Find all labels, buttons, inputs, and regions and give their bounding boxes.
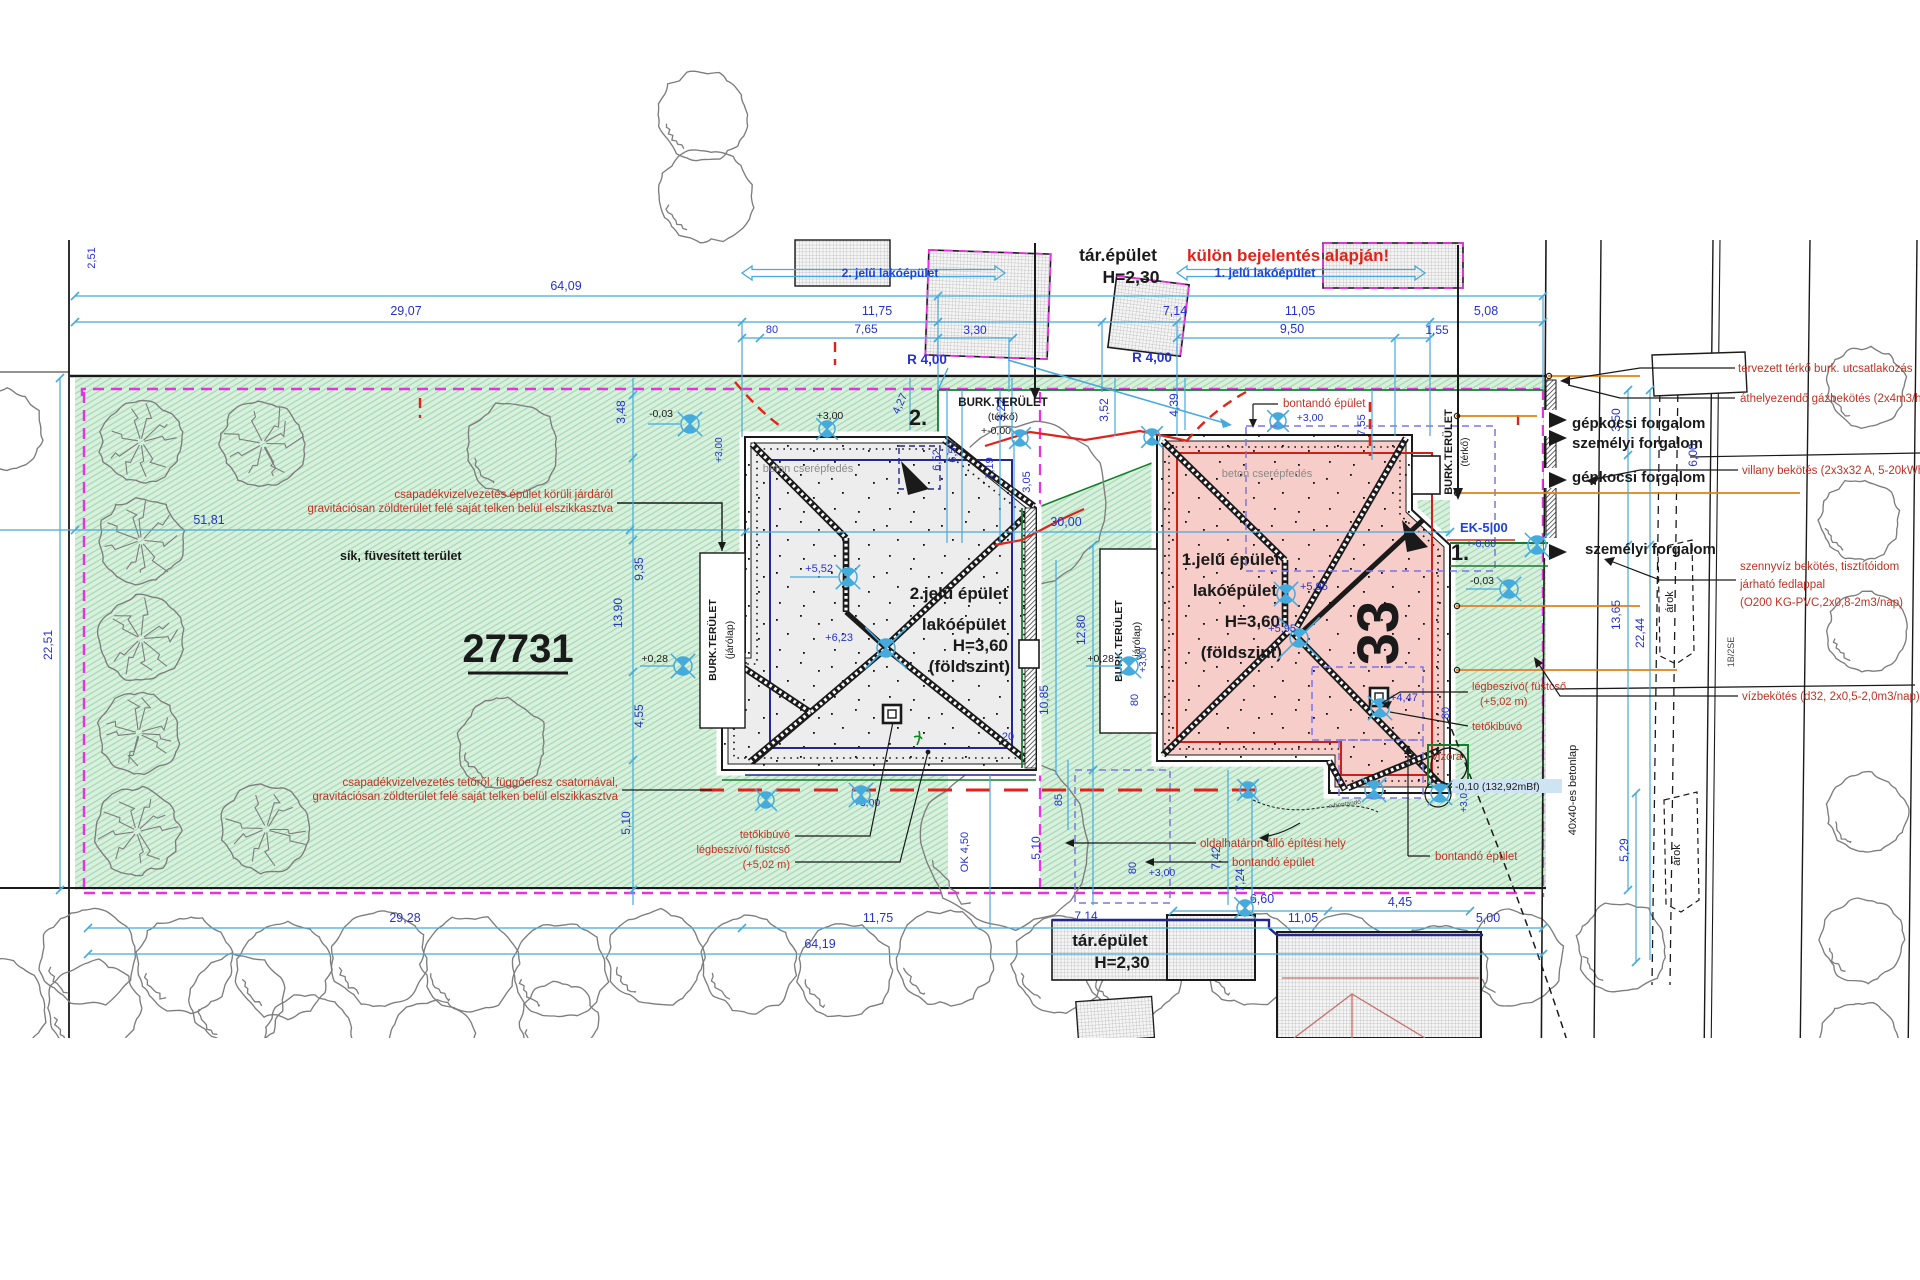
svg-text:-0,10 (132,92mBf): -0,10 (132,92mBf) <box>1455 781 1540 793</box>
svg-text:+0,28: +0,28 <box>641 653 668 665</box>
svg-text:11,05: 11,05 <box>1288 911 1318 925</box>
svg-text:20: 20 <box>1002 731 1014 743</box>
svg-text:R 4,00: R 4,00 <box>1132 350 1172 365</box>
svg-text:áthelyezendő gázbekötés (2x4m3: áthelyezendő gázbekötés (2x4m3/h) <box>1740 393 1920 405</box>
svg-text:(+5,02 m): (+5,02 m) <box>743 859 790 871</box>
svg-text:7,14: 7,14 <box>1074 909 1098 923</box>
svg-text:2. jelű lakóépület: 2. jelű lakóépület <box>842 266 939 280</box>
svg-text:oldalhatáron álló építési hely: oldalhatáron álló építési hely <box>1200 838 1346 850</box>
svg-text:vízóra: vízóra <box>1432 751 1463 763</box>
svg-text:22,51: 22,51 <box>41 630 55 660</box>
svg-text:1,55: 1,55 <box>1425 323 1449 337</box>
svg-text:sík, füvesített terület: sík, füvesített terület <box>340 549 462 563</box>
svg-text:tár.épület: tár.épület <box>1072 931 1148 950</box>
svg-text:légbeszívó/ füstcső: légbeszívó/ füstcső <box>696 844 790 856</box>
svg-text:+0,28: +0,28 <box>1087 653 1114 665</box>
svg-text:+3,00: +3,00 <box>817 410 844 422</box>
svg-text:EK-5|00: EK-5|00 <box>1460 520 1508 535</box>
svg-text:7,14: 7,14 <box>1163 304 1187 318</box>
svg-text:1.jelű épület: 1.jelű épület <box>1182 550 1281 569</box>
svg-text:gépkocsi forgalom: gépkocsi forgalom <box>1572 415 1705 432</box>
svg-text:7,55: 7,55 <box>1356 414 1368 435</box>
svg-text:(földszint): (földszint) <box>929 657 1010 676</box>
svg-text:13,65: 13,65 <box>1609 600 1623 630</box>
svg-text:80: 80 <box>1129 694 1141 706</box>
svg-text:tervezett térkő burk. utcsatla: tervezett térkő burk. utcsatlakozás <box>1738 363 1913 375</box>
svg-text:30,00: 30,00 <box>1050 515 1081 529</box>
svg-text:2,51: 2,51 <box>86 247 98 268</box>
svg-text:vízbekötés (d32, 2x0,5-2,0m3/n: vízbekötés (d32, 2x0,5-2,0m3/nap) <box>1742 691 1920 703</box>
svg-text:beton cserépfedés: beton cserépfedés <box>763 463 854 475</box>
svg-text:lakóépület: lakóépület <box>1193 581 1277 600</box>
svg-text:80: 80 <box>766 324 778 336</box>
svg-text:7,65: 7,65 <box>854 322 878 336</box>
svg-text:11,75: 11,75 <box>863 911 893 925</box>
svg-text:tetőkibúvó: tetőkibúvó <box>1472 721 1522 733</box>
svg-text:+3,00: +3,00 <box>1138 647 1149 673</box>
svg-text:-0,03: -0,03 <box>1470 575 1494 587</box>
svg-text:csapadékvizelvezetés épület kö: csapadékvizelvezetés épület körüli járdá… <box>394 489 613 501</box>
svg-text:+3,00: +3,00 <box>714 437 725 463</box>
svg-text:árok: árok <box>1671 844 1683 866</box>
svg-text:BURK.TERÜLET: BURK.TERÜLET <box>958 396 1047 409</box>
svg-text:személyi forgalom: személyi forgalom <box>1585 541 1716 558</box>
svg-text:gravitációsan zöldterület felé: gravitációsan zöldterület felé saját tel… <box>312 791 618 803</box>
svg-text:tetőkibúvó: tetőkibúvó <box>740 829 790 841</box>
svg-text:beton cserépfedés: beton cserépfedés <box>1222 468 1313 480</box>
svg-text:80: 80 <box>1127 862 1139 874</box>
svg-text:6,52: 6,52 <box>947 441 959 462</box>
svg-text:5,10: 5,10 <box>1029 836 1043 860</box>
svg-text:(térkő): (térkő) <box>1460 438 1471 467</box>
svg-text:64,09: 64,09 <box>550 279 581 293</box>
svg-text:BURK.TERÜLET: BURK.TERÜLET <box>1442 409 1455 495</box>
svg-text:R 4,00: R 4,00 <box>907 352 947 367</box>
svg-text:2.: 2. <box>909 405 927 430</box>
svg-text:7,24: 7,24 <box>1233 868 1247 892</box>
svg-text:33: 33 <box>1346 601 1411 666</box>
svg-text:40x40-es betonlap: 40x40-es betonlap <box>1567 745 1579 836</box>
svg-text:légbeszívó( füstcső: légbeszívó( füstcső <box>1472 681 1566 693</box>
svg-text:2.jelű épület: 2.jelű épület <box>910 584 1009 603</box>
svg-text:lakóépület: lakóépület <box>922 615 1006 634</box>
svg-text:+-0,00: +-0,00 <box>1466 538 1496 550</box>
svg-text:szennyvíz bekötés, tisztítóido: szennyvíz bekötés, tisztítóidom <box>1740 561 1899 573</box>
svg-text:5,10: 5,10 <box>619 811 633 835</box>
svg-text:villany bekötés (2x3x32 A, 5-2: villany bekötés (2x3x32 A, 5-20kWh) <box>1742 465 1920 477</box>
svg-text:11,05: 11,05 <box>1285 304 1315 318</box>
svg-text:4,39: 4,39 <box>1167 393 1181 417</box>
svg-text:5,08: 5,08 <box>1474 304 1498 318</box>
svg-text:3,48: 3,48 <box>614 400 628 424</box>
svg-text:6,52: 6,52 <box>931 449 943 470</box>
svg-text:4,55: 4,55 <box>632 704 646 728</box>
svg-text:7,19: 7,19 <box>984 457 996 478</box>
svg-text:bontandó épület: bontandó épület <box>1435 851 1518 863</box>
svg-text:gépkocsi forgalom: gépkocsi forgalom <box>1572 469 1705 486</box>
svg-text:9,35: 9,35 <box>632 557 646 581</box>
svg-text:+3,00: +3,00 <box>1297 412 1324 424</box>
svg-text:(+5,02 m): (+5,02 m) <box>1480 696 1527 708</box>
svg-text:64,19: 64,19 <box>804 937 835 951</box>
svg-text:BURK.TERÜLET: BURK.TERÜLET <box>706 599 719 681</box>
svg-text:járható fedlappal: járható fedlappal <box>1739 579 1825 591</box>
svg-text:22,44: 22,44 <box>1633 618 1647 648</box>
svg-text:3,30: 3,30 <box>963 323 987 337</box>
svg-text:10,85: 10,85 <box>1037 685 1051 715</box>
svg-text:bontandó épület: bontandó épület <box>1232 857 1315 869</box>
svg-text:BURK.TERÜLET: BURK.TERÜLET <box>1112 600 1125 682</box>
svg-text:személyi forgalom: személyi forgalom <box>1572 435 1703 452</box>
svg-text:13,90: 13,90 <box>611 598 625 628</box>
svg-text:(földszint): (földszint) <box>1201 643 1282 662</box>
svg-text:5,29: 5,29 <box>1617 838 1631 862</box>
svg-text:12,80: 12,80 <box>1074 615 1088 645</box>
svg-text:80: 80 <box>1440 707 1452 719</box>
svg-text:+4,47: +4,47 <box>1390 692 1418 704</box>
svg-text:4,45: 4,45 <box>1388 895 1412 909</box>
svg-text:+5,95: +5,95 <box>1300 581 1328 593</box>
svg-text:bontandó épület: bontandó épület <box>1283 398 1366 410</box>
svg-text:(járólap): (járólap) <box>724 621 736 660</box>
svg-text:11,75: 11,75 <box>862 304 892 318</box>
svg-text:+-0,00: +-0,00 <box>981 425 1011 437</box>
svg-text:1B/2SE: 1B/2SE <box>1726 637 1736 668</box>
svg-text:csapadékvizelvezetés tetőről,: csapadékvizelvezetés tetőről, függőeresz… <box>342 777 618 789</box>
svg-text:-0,03: -0,03 <box>649 408 673 420</box>
svg-text:árok: árok <box>1664 591 1676 613</box>
svg-text:gravitációsan zöldterület felé: gravitációsan zöldterület felé saját tel… <box>307 503 613 515</box>
svg-text:85: 85 <box>1053 794 1065 806</box>
svg-text:+3,00: +3,00 <box>1149 867 1176 879</box>
svg-text:+5,95: +5,95 <box>1268 623 1296 635</box>
svg-text:9,50: 9,50 <box>1280 322 1304 336</box>
svg-text:H=3,60: H=3,60 <box>953 636 1008 655</box>
svg-text:tár.épület: tár.épület <box>1079 245 1157 265</box>
svg-text:(O200 KG-PVC,2x0,8-2m3/nap): (O200 KG-PVC,2x0,8-2m3/nap) <box>1740 597 1903 609</box>
svg-text:3,05: 3,05 <box>1021 471 1033 492</box>
svg-text:27731: 27731 <box>462 627 573 671</box>
svg-text:külön bejelentés alapján!: külön bejelentés alapján! <box>1187 246 1389 265</box>
svg-text:H=2,30: H=2,30 <box>1103 267 1160 287</box>
svg-text:OK 4,50: OK 4,50 <box>959 832 971 872</box>
svg-text:5,00: 5,00 <box>1476 911 1500 925</box>
svg-text:1. jelű lakóépület: 1. jelű lakóépület <box>1215 266 1317 280</box>
svg-text:51,81: 51,81 <box>193 513 224 527</box>
svg-text:29,28: 29,28 <box>389 911 420 925</box>
svg-text:29,07: 29,07 <box>390 304 421 318</box>
svg-text:H=2,30: H=2,30 <box>1094 953 1149 972</box>
svg-text:3,52: 3,52 <box>1097 398 1111 422</box>
svg-text:+6,23: +6,23 <box>825 632 853 644</box>
svg-text:+5,52: +5,52 <box>805 563 833 575</box>
svg-text:(térkő): (térkő) <box>988 411 1018 423</box>
